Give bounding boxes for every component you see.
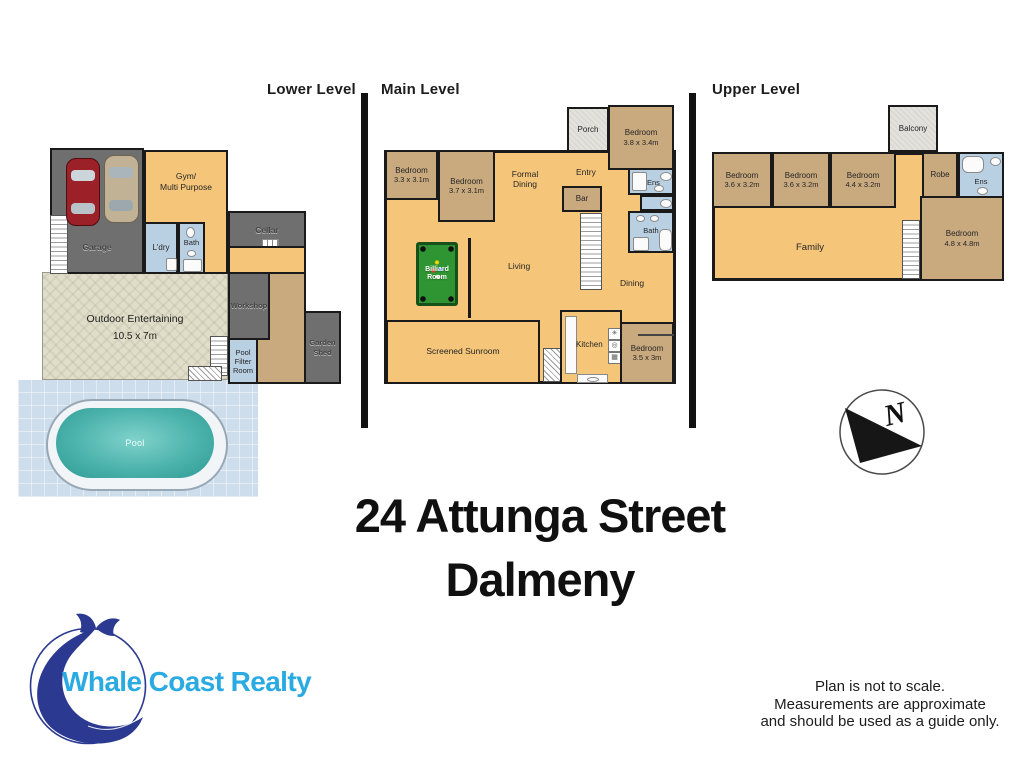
north-arrow-icon: N [836,386,928,478]
disclaimer-line2: Measurements are approximate [728,696,1024,714]
bedroom-main-dims: 4.8 x 4.8m [944,239,979,248]
address-title: 24 Attunga Street Dalmeny [290,484,790,612]
family-label: Family [780,243,840,253]
toilet-icon [990,157,1001,166]
room-bedroom-se: Bedroom 3.5 x 3m [620,322,674,384]
room-sunroom: Screened Sunroom [386,320,540,384]
bedroom-main-label: Bedroom [946,229,978,239]
bathtub-icon [962,156,984,173]
bedroom-u3-dims: 4.4 x 3.2m [845,180,880,189]
disclaimer-line1: Plan is not to scale. [728,678,1024,696]
room-bedroom-u1: Bedroom 3.6 x 3.2m [712,152,772,208]
bedroom-u2-label: Bedroom [785,171,817,181]
bedroom-u1-dims: 3.6 x 3.2m [724,180,759,189]
kitchen-label: Kitchen [576,340,603,350]
room-ens-upper: Ens [958,152,1004,198]
floorplan-page: Lower Level Main Level Upper Level Outdo… [0,0,1024,768]
robe-label: Robe [930,170,949,180]
address-line1: 24 Attunga Street [290,484,790,548]
disclaimer: Plan is not to scale. Measurements are a… [728,678,1024,731]
room-balcony: Balcony [888,105,938,152]
bedroom-u3-label: Bedroom [847,171,879,181]
balcony-label: Balcony [899,124,927,134]
floorplan-upper: Balcony Bedroom 3.6 x 3.2m Bedroom 3.6 x… [0,0,1024,300]
bedroom-se-label: Bedroom [631,344,663,354]
pool-label: Pool [125,438,144,448]
sink-icon [977,187,988,195]
room-kitchen: Kitchen ✳ ◎ ▦ [560,310,622,384]
disclaimer-line3: and should be used as a guide only. [728,713,1024,731]
room-robe: Robe [922,152,958,198]
stairs-upper [902,220,920,279]
sunroom-label: Screened Sunroom [426,347,499,357]
room-bedroom-main: Bedroom 4.8 x 4.8m [920,196,1004,281]
robe-rail [638,334,674,336]
bedroom-u2-dims: 3.6 x 3.2m [783,180,818,189]
bedroom-u1-label: Bedroom [726,171,758,181]
bedroom-se-dims: 3.5 x 3m [633,353,662,362]
address-line2: Dalmeny [290,548,790,612]
sink-bench [577,374,608,383]
room-bedroom-u3: Bedroom 4.4 x 3.2m [830,152,896,208]
logo-text: Whale Coast Realty [62,666,311,698]
room-bedroom-u2: Bedroom 3.6 x 3.2m [772,152,830,208]
sink-icon [587,377,599,382]
ens-upper-label: Ens [960,177,1002,186]
